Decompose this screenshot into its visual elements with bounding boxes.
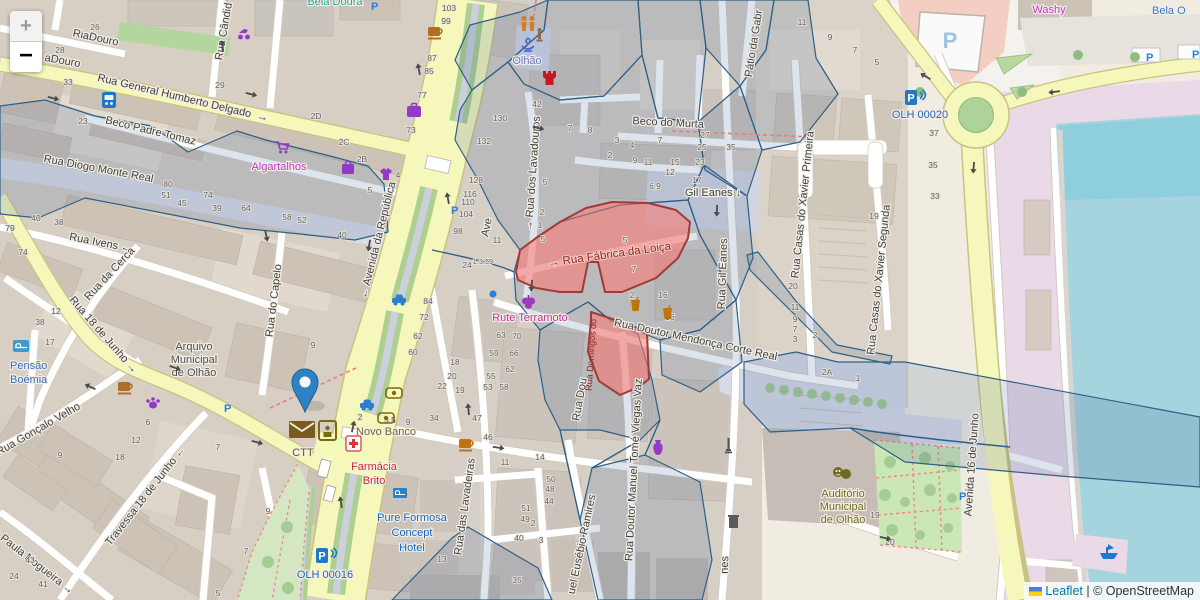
svg-text:19: 19 xyxy=(869,211,879,221)
svg-text:P: P xyxy=(959,491,966,503)
svg-text:5: 5 xyxy=(541,234,546,244)
svg-text:85: 85 xyxy=(424,66,434,76)
svg-text:5: 5 xyxy=(875,57,880,67)
svg-text:17: 17 xyxy=(692,175,702,185)
svg-text:18: 18 xyxy=(115,452,125,462)
svg-text:5: 5 xyxy=(623,235,628,245)
svg-text:Rua Gil Eanes: Rua Gil Eanes xyxy=(716,238,730,310)
svg-text:P: P xyxy=(371,1,378,13)
svg-text:2: 2 xyxy=(531,518,536,528)
svg-text:7: 7 xyxy=(244,546,249,556)
svg-text:110: 110 xyxy=(461,197,475,207)
svg-text:11: 11 xyxy=(798,17,807,27)
svg-text:38: 38 xyxy=(54,217,64,227)
svg-text:15: 15 xyxy=(670,157,680,167)
svg-text:Municipal: Municipal xyxy=(820,501,866,513)
svg-text:5: 5 xyxy=(216,588,221,598)
svg-text:38: 38 xyxy=(35,317,45,327)
svg-text:87: 87 xyxy=(427,53,437,63)
svg-text:24: 24 xyxy=(9,571,19,581)
svg-text:27: 27 xyxy=(700,130,710,140)
svg-text:7: 7 xyxy=(632,264,637,274)
svg-text:2: 2 xyxy=(540,207,545,217)
svg-text:7: 7 xyxy=(793,324,798,334)
svg-text:132: 132 xyxy=(477,136,491,146)
svg-text:37: 37 xyxy=(929,128,939,138)
svg-text:Pure Formosa: Pure Formosa xyxy=(377,512,448,524)
svg-text:45: 45 xyxy=(177,198,187,208)
svg-text:9: 9 xyxy=(311,340,316,350)
svg-text:20: 20 xyxy=(447,371,457,381)
svg-text:34: 34 xyxy=(429,413,439,423)
svg-text:73: 73 xyxy=(406,125,416,135)
svg-text:Olhão: Olhão xyxy=(512,55,541,67)
svg-text:20: 20 xyxy=(788,281,798,291)
svg-text:P: P xyxy=(451,205,458,217)
svg-text:2: 2 xyxy=(813,330,818,340)
svg-text:3: 3 xyxy=(539,535,544,545)
svg-text:4: 4 xyxy=(630,140,635,150)
svg-text:23: 23 xyxy=(78,116,88,126)
svg-text:P: P xyxy=(943,28,958,53)
svg-text:17: 17 xyxy=(45,337,55,347)
svg-text:Municipal: Municipal xyxy=(171,354,217,366)
svg-text:Concept: Concept xyxy=(392,527,433,539)
svg-text:3: 3 xyxy=(615,135,620,145)
svg-text:59: 59 xyxy=(489,348,499,358)
svg-text:9: 9 xyxy=(406,417,411,427)
svg-text:24: 24 xyxy=(462,260,472,270)
svg-text:98: 98 xyxy=(453,226,463,236)
svg-text:43: 43 xyxy=(25,555,35,565)
svg-text:40: 40 xyxy=(514,533,524,543)
svg-text:33: 33 xyxy=(930,191,940,201)
svg-text:49: 49 xyxy=(520,514,530,524)
svg-text:Rute Terramoto: Rute Terramoto xyxy=(492,312,568,324)
svg-text:P: P xyxy=(1146,52,1153,64)
svg-text:de Olhão: de Olhão xyxy=(821,514,866,526)
svg-text:58: 58 xyxy=(499,382,509,392)
svg-text:2: 2 xyxy=(630,290,635,300)
svg-text:2: 2 xyxy=(608,150,613,160)
svg-text:Algartalhos: Algartalhos xyxy=(251,161,307,173)
svg-text:44: 44 xyxy=(544,496,554,506)
svg-text:12: 12 xyxy=(665,167,675,177)
svg-text:50: 50 xyxy=(546,474,556,484)
svg-text:Novo Banco: Novo Banco xyxy=(356,426,416,438)
svg-text:P: P xyxy=(907,93,914,105)
svg-text:60: 60 xyxy=(408,347,418,357)
svg-text:nes: nes xyxy=(719,555,732,574)
svg-text:7: 7 xyxy=(216,442,221,452)
svg-text:9: 9 xyxy=(58,450,63,460)
svg-text:1: 1 xyxy=(856,373,861,383)
svg-text:66: 66 xyxy=(509,348,519,358)
svg-text:9: 9 xyxy=(489,257,493,266)
svg-text:40: 40 xyxy=(31,213,41,223)
svg-text:9: 9 xyxy=(633,155,638,165)
svg-text:62: 62 xyxy=(413,331,423,341)
svg-text:5: 5 xyxy=(543,177,548,187)
svg-text:35: 35 xyxy=(726,142,736,152)
svg-text:58: 58 xyxy=(282,212,292,222)
svg-text:22: 22 xyxy=(437,381,447,391)
svg-text:55: 55 xyxy=(486,371,496,381)
svg-text:26: 26 xyxy=(90,22,100,32)
svg-text:CTT: CTT xyxy=(292,447,314,459)
svg-text:35: 35 xyxy=(512,575,522,585)
svg-text:9: 9 xyxy=(793,314,798,324)
svg-text:52: 52 xyxy=(297,215,307,225)
svg-text:Pensão: Pensão xyxy=(10,360,47,372)
svg-text:62: 62 xyxy=(505,364,515,374)
svg-text:13: 13 xyxy=(437,554,447,564)
svg-text:48: 48 xyxy=(545,484,555,494)
svg-text:19: 19 xyxy=(870,510,880,520)
svg-text:6.9: 6.9 xyxy=(649,181,661,191)
svg-text:130: 130 xyxy=(493,113,507,123)
svg-text:128: 128 xyxy=(469,175,483,185)
svg-text:3: 3 xyxy=(793,334,798,344)
svg-text:23: 23 xyxy=(695,157,705,167)
svg-text:64: 64 xyxy=(241,203,251,213)
svg-text:Arquivo: Arquivo xyxy=(175,341,212,353)
svg-text:40: 40 xyxy=(337,230,347,240)
svg-text:104: 104 xyxy=(459,209,473,219)
svg-text:P: P xyxy=(318,551,325,563)
svg-text:18: 18 xyxy=(450,357,460,367)
svg-text:84: 84 xyxy=(423,296,433,306)
svg-text:11: 11 xyxy=(644,157,653,167)
svg-text:28: 28 xyxy=(55,45,65,55)
svg-text:7: 7 xyxy=(658,135,663,145)
svg-text:33: 33 xyxy=(63,77,73,87)
svg-text:80: 80 xyxy=(163,179,173,189)
svg-text:12: 12 xyxy=(51,306,61,316)
svg-text:29: 29 xyxy=(215,80,225,90)
svg-text:42: 42 xyxy=(532,99,542,109)
svg-text:35: 35 xyxy=(928,160,938,170)
svg-text:70: 70 xyxy=(512,331,522,341)
svg-text:9: 9 xyxy=(828,32,833,42)
svg-text:47: 47 xyxy=(472,413,482,423)
svg-text:19: 19 xyxy=(455,385,465,395)
svg-text:2: 2 xyxy=(358,412,363,422)
svg-text:53: 53 xyxy=(483,382,493,392)
svg-text:11: 11 xyxy=(501,457,510,467)
svg-text:41: 41 xyxy=(38,579,48,589)
svg-text:Boémia: Boémia xyxy=(10,374,48,386)
svg-text:Auditório: Auditório xyxy=(821,488,864,500)
svg-text:74: 74 xyxy=(203,190,213,200)
svg-text:8: 8 xyxy=(588,125,593,135)
svg-text:4: 4 xyxy=(396,170,401,180)
svg-text:39: 39 xyxy=(212,203,222,213)
svg-text:46: 46 xyxy=(483,432,493,442)
svg-text:2A: 2A xyxy=(822,367,833,377)
svg-text:11: 11 xyxy=(493,235,502,245)
svg-text:14: 14 xyxy=(535,452,545,462)
svg-text:P: P xyxy=(224,403,231,415)
svg-text:103: 103 xyxy=(442,3,456,13)
svg-text:Gil Eanes ↓: Gil Eanes ↓ xyxy=(685,187,741,199)
svg-text:6: 6 xyxy=(146,417,151,427)
svg-text:25: 25 xyxy=(697,142,707,152)
svg-text:79: 79 xyxy=(5,223,15,233)
svg-text:7: 7 xyxy=(853,45,858,55)
svg-text:5: 5 xyxy=(368,185,373,195)
svg-text:2B: 2B xyxy=(357,154,368,164)
svg-text:51: 51 xyxy=(161,190,171,200)
svg-text:7: 7 xyxy=(568,123,573,133)
svg-text:77: 77 xyxy=(417,90,427,100)
svg-text:2D: 2D xyxy=(311,111,322,121)
svg-text:1.3.5: 1.3.5 xyxy=(473,257,490,266)
svg-text:12: 12 xyxy=(131,435,141,445)
svg-text:Bela O: Bela O xyxy=(1152,5,1186,17)
svg-text:Bela Doura: Bela Doura xyxy=(307,0,363,8)
svg-text:OLH 00016: OLH 00016 xyxy=(297,569,353,581)
svg-text:11: 11 xyxy=(791,302,800,312)
svg-text:51: 51 xyxy=(521,503,531,513)
svg-text:P: P xyxy=(1192,49,1199,61)
svg-text:74: 74 xyxy=(18,247,28,257)
svg-text:Farmácia: Farmácia xyxy=(351,461,398,473)
svg-text:Washy: Washy xyxy=(1032,4,1066,16)
svg-text:2C: 2C xyxy=(339,137,350,147)
svg-text:16: 16 xyxy=(658,290,668,300)
svg-text:Hotel: Hotel xyxy=(399,542,425,554)
svg-text:72: 72 xyxy=(419,312,429,322)
svg-text:Brito: Brito xyxy=(363,475,386,487)
svg-text:63: 63 xyxy=(496,330,506,340)
svg-text:9: 9 xyxy=(266,506,271,516)
svg-text:OLH 00020: OLH 00020 xyxy=(892,109,948,121)
svg-text:1: 1 xyxy=(538,220,543,230)
svg-text:99: 99 xyxy=(441,16,451,26)
